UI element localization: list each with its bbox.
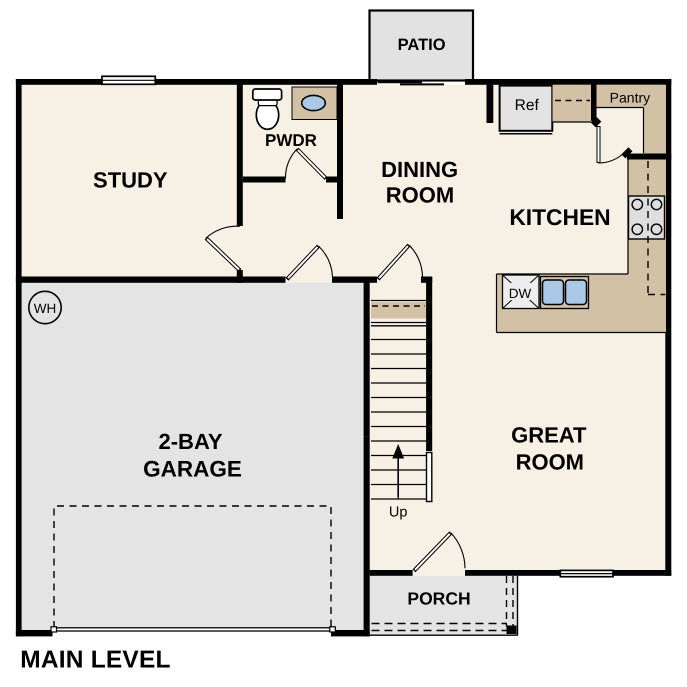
svg-text:ROOM: ROOM: [516, 449, 584, 474]
svg-text:PORCH: PORCH: [407, 589, 470, 609]
svg-text:PWDR: PWDR: [265, 131, 317, 150]
svg-text:ROOM: ROOM: [386, 183, 454, 208]
svg-text:PATIO: PATIO: [398, 36, 446, 54]
svg-text:Ref: Ref: [515, 97, 540, 114]
svg-text:DINING: DINING: [381, 157, 458, 182]
svg-text:WH: WH: [34, 301, 57, 316]
svg-text:Pantry: Pantry: [610, 89, 650, 105]
svg-text:GARAGE: GARAGE: [143, 456, 242, 481]
svg-text:DW: DW: [509, 286, 532, 301]
svg-text:KITCHEN: KITCHEN: [509, 204, 610, 230]
svg-text:2-BAY: 2-BAY: [159, 429, 223, 454]
svg-text:MAIN LEVEL: MAIN LEVEL: [20, 647, 170, 674]
svg-text:GREAT: GREAT: [511, 422, 587, 447]
svg-text:Up: Up: [389, 505, 408, 521]
svg-text:STUDY: STUDY: [93, 168, 168, 193]
